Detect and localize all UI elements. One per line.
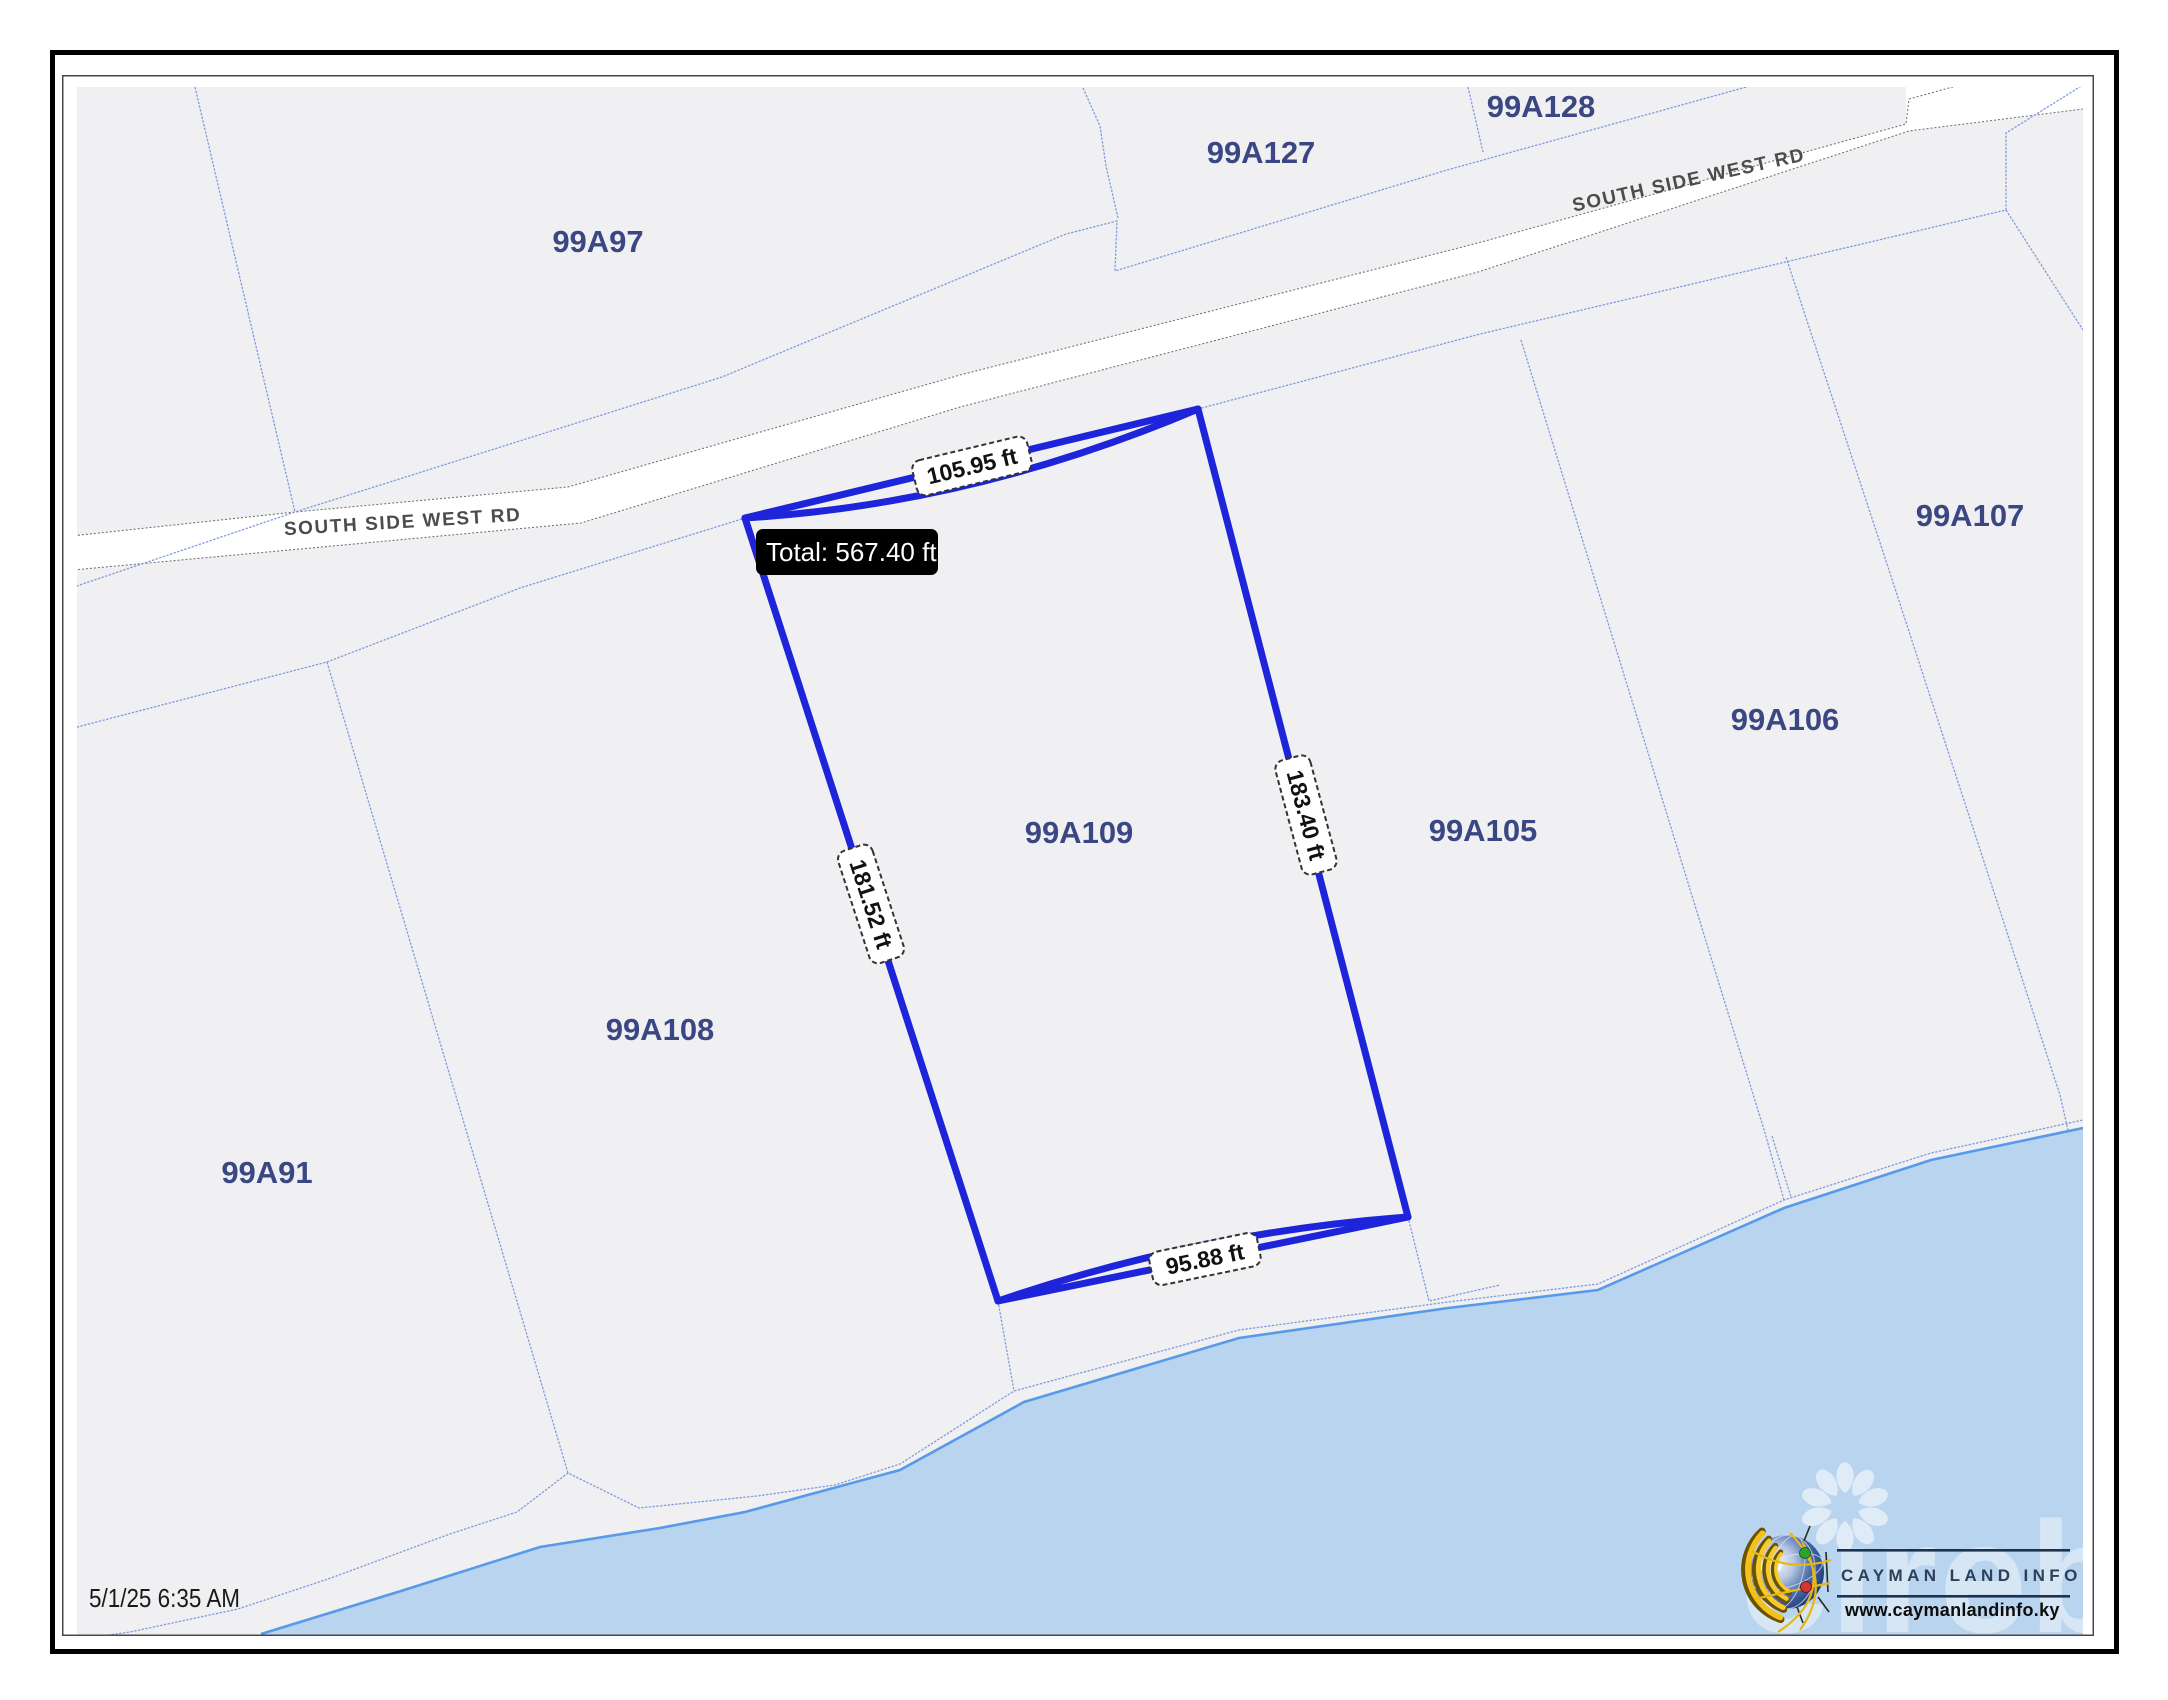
svg-text:Total: 567.40 ft: Total: 567.40 ft (766, 537, 937, 567)
svg-text:99A109: 99A109 (1025, 815, 1134, 850)
svg-text:99A97: 99A97 (552, 224, 643, 259)
svg-text:99A108: 99A108 (606, 1012, 715, 1047)
svg-text:5/1/25 6:35 AM: 5/1/25 6:35 AM (89, 1583, 240, 1613)
svg-text:99A128: 99A128 (1487, 89, 1596, 124)
svg-text:www.caymanlandinfo.ky: www.caymanlandinfo.ky (1844, 1600, 2060, 1620)
svg-text:99A127: 99A127 (1207, 135, 1316, 170)
svg-text:99A91: 99A91 (221, 1155, 312, 1190)
svg-text:99A105: 99A105 (1429, 813, 1538, 848)
svg-text:99A106: 99A106 (1731, 702, 1840, 737)
svg-text:CAYMAN LAND INFO: CAYMAN LAND INFO (1841, 1566, 2082, 1585)
svg-text:99A107: 99A107 (1916, 498, 2025, 533)
